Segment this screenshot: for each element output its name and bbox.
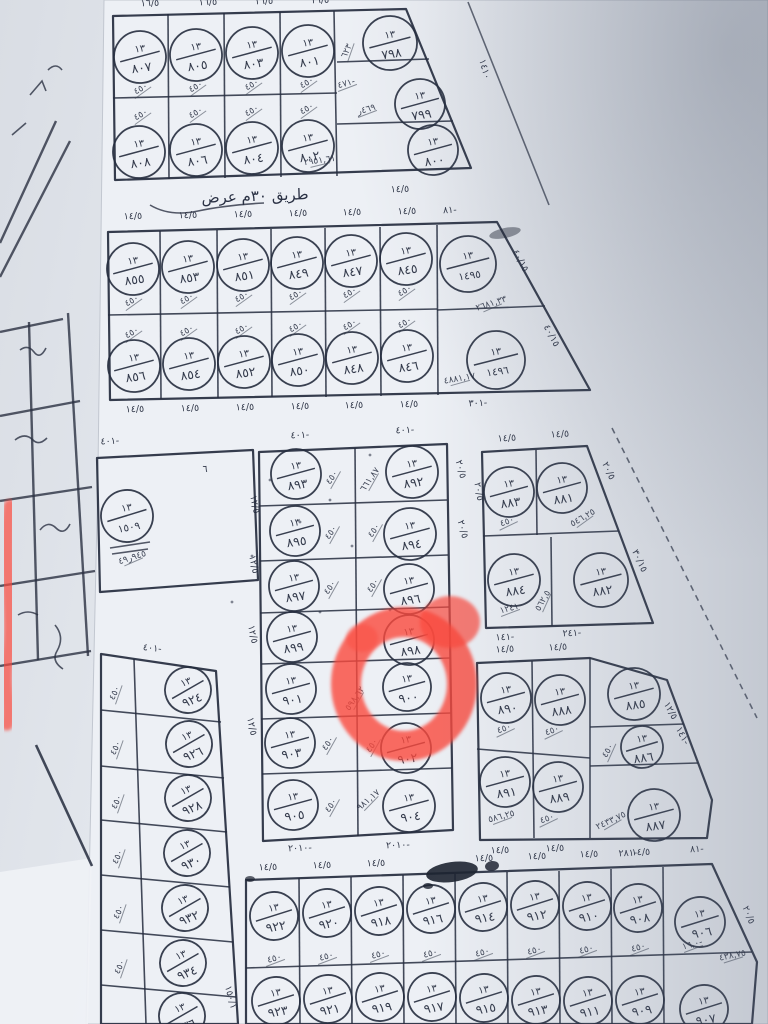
cadastral-map: ١٣٨٠٧١٣٨٠٥١٣٨٠٣١٣٨٠١١٣٧٩٨١٣٧٩٩١٣٨٠٠١٣٨٠٨… — [0, 0, 768, 1024]
corner-shadow-overlay — [0, 0, 768, 1024]
photographed-cadastral-sheet: ١٣٨٠٧١٣٨٠٥١٣٨٠٣١٣٨٠١١٣٧٩٨١٣٧٩٩١٣٨٠٠١٣٨٠٨… — [0, 0, 768, 1024]
